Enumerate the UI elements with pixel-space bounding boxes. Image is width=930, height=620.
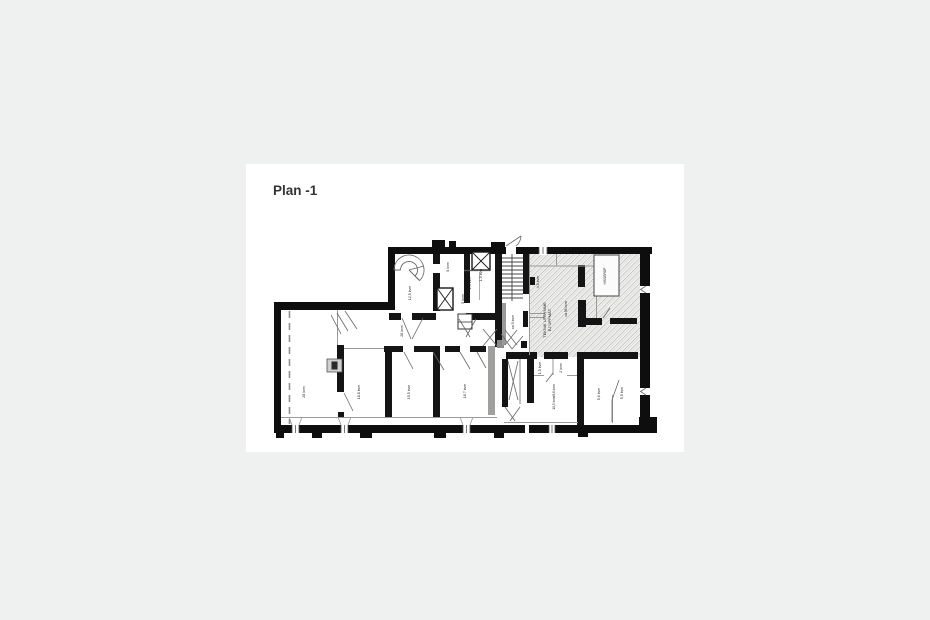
svg-text:1,5 kvm: 1,5 kvm [538,362,542,375]
svg-text:5,6 kvm: 5,6 kvm [597,388,601,401]
svg-text:15.5 kvm: 15.5 kvm [407,385,411,400]
svg-text:ca 5 kvm: ca 5 kvm [511,315,515,329]
svg-text:2 kvm: 2 kvm [559,363,563,373]
svg-text:5 kvm: 5 kvm [461,294,465,304]
svg-text:5,5 kvm: 5,5 kvm [620,387,624,400]
svg-text:18.8 kvm: 18.8 kvm [357,385,361,400]
svg-text:ca 56 kvm: ca 56 kvm [564,301,568,317]
svg-text:28 kvm: 28 kvm [302,386,306,398]
svg-text:10,5 kvm/6,6 kvm: 10,5 kvm/6,6 kvm [552,384,556,409]
svg-text:28 kvm: 28 kvm [400,325,404,337]
svg-text:1,5 kvm: 1,5 kvm [479,269,483,282]
svg-text:1,5 kvm: 1,5 kvm [468,277,472,290]
svg-text:12,5 kvm: 12,5 kvm [408,286,412,301]
svg-text:4,5 kvm: 4,5 kvm [536,276,540,289]
svg-text:18.7 kvm: 18.7 kvm [463,384,467,399]
svg-text:5 kvm: 5 kvm [446,262,450,272]
svg-text:HISSGROP: HISSGROP [603,268,607,285]
